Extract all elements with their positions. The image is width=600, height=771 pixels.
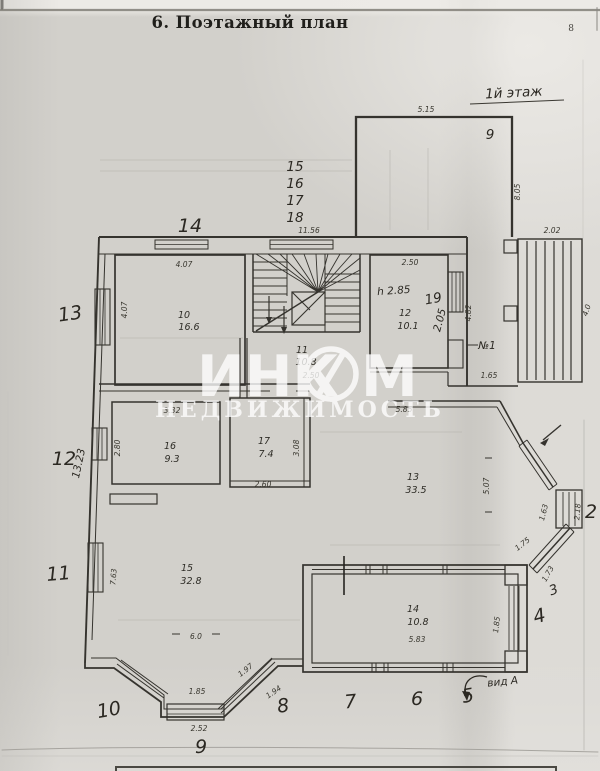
mark-16: 16: [286, 176, 303, 192]
mark-17: 17: [286, 193, 304, 209]
dim-hall13-right: 5.07: [482, 477, 491, 494]
mark-15: 15: [286, 159, 303, 175]
dim-veranda-right: 1.85: [491, 616, 502, 634]
dim-r15-width: 6.0: [190, 632, 202, 641]
dim-r16-left: 2.80: [113, 439, 122, 456]
room13-num: 13: [407, 472, 419, 483]
mark-8: 8: [276, 694, 291, 717]
exterior-walls: [85, 237, 518, 717]
dim-bay-win-v: 1.63: [537, 503, 550, 522]
view-note: вид А: [487, 674, 519, 689]
bay-arrow: [540, 425, 561, 446]
dim-r17-right: 3.08: [292, 439, 301, 456]
mark-10: 10: [95, 697, 123, 723]
dim-top-wall: 11.56: [298, 226, 320, 235]
room12-area: 10.1: [397, 321, 418, 332]
dim-r10-top: 4.07: [176, 260, 193, 269]
room13-area: 33.5: [405, 485, 426, 496]
mark-4: 4: [531, 604, 548, 628]
mark-7: 7: [343, 691, 357, 714]
dim-r12-top: 2.50: [402, 258, 419, 267]
room17-num: 17: [258, 436, 270, 447]
mark-2: 2: [585, 501, 597, 523]
dim-note-n1: №1: [477, 340, 496, 352]
dim-r10-left: 4.07: [120, 301, 129, 318]
dim-bay-s-top: 1.85: [189, 687, 206, 696]
top-wall-windows: [155, 240, 333, 249]
floor-plan-drawing: 5.15 8.05 2.02 4.0 11.56 4.07 4.07 2.50 …: [0, 0, 600, 771]
room15-area: 32.8: [180, 576, 201, 587]
dim-bay-s-bottom: 2.52: [191, 724, 208, 733]
room17-area: 7.4: [258, 449, 273, 460]
mark-3: 3: [547, 581, 561, 599]
mark-9: 9: [195, 736, 207, 758]
dim-veranda-bottom: 5.83: [409, 635, 426, 644]
dim-r12-right: 4.82: [464, 304, 473, 321]
room10-num: 10: [178, 310, 190, 321]
watermark: ИНК М НЕДВИЖИМОСТЬ: [155, 344, 445, 423]
room16-area: 9.3: [164, 454, 179, 465]
dim-bay-win-d1: 1.75: [513, 535, 532, 553]
room12-height: h 2.85: [377, 284, 411, 298]
dim-bay-win-v2: 2.18: [572, 503, 582, 521]
dim-r12-inner: 2.05: [431, 307, 449, 333]
dim-terrace-top: 5.15: [418, 105, 435, 114]
watermark-subtitle: НЕДВИЖИМОСТЬ: [155, 397, 445, 423]
mark-5: 5: [460, 684, 476, 708]
room14-num: 14: [407, 604, 419, 615]
dim-r12-bottom: 1.65: [481, 371, 498, 380]
mark-6: 6: [411, 688, 423, 710]
scanned-floorplan-page: 6. Поэтажный план 8: [0, 0, 600, 771]
room12-num: 12: [399, 308, 411, 319]
mark-18: 18: [286, 210, 303, 226]
dim-r17-bottom: 2.60: [255, 480, 272, 489]
mark-12: 12: [52, 448, 76, 470]
room15-num: 15: [181, 563, 193, 574]
dim-porch-top: 2.02: [544, 226, 561, 235]
mark-9-terrace: 9: [486, 127, 495, 143]
room16-num: 16: [164, 441, 176, 452]
floor-note: 1й этаж: [485, 83, 544, 102]
room14-area: 10.8: [407, 617, 428, 628]
room10-area: 16.6: [178, 322, 199, 333]
mark-19: 19: [423, 290, 443, 309]
mark-13: 13: [57, 301, 84, 326]
dim-r15-left: 7.63: [108, 568, 118, 586]
mark-14: 14: [178, 215, 202, 237]
mark-11: 11: [45, 562, 71, 586]
dim-terrace-right: 8.05: [513, 183, 522, 200]
porch-steps: [504, 239, 582, 382]
